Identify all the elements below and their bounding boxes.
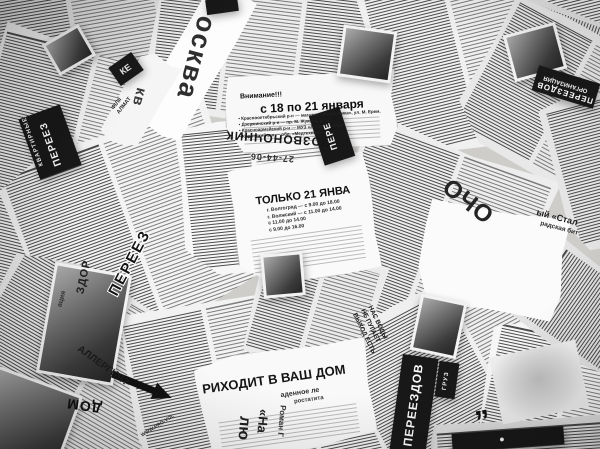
title-lyu: лю <box>232 415 255 441</box>
newsprint-photo <box>337 24 398 83</box>
title-na: «На <box>253 408 272 433</box>
newspaper-collage-photo: оскваквКВАРТИРНЫЕПЕРЕЕЗКЕВнимание!!!с 18… <box>0 0 600 449</box>
bullet-dot: ● <box>499 434 504 446</box>
newsprint-photo <box>260 251 306 298</box>
